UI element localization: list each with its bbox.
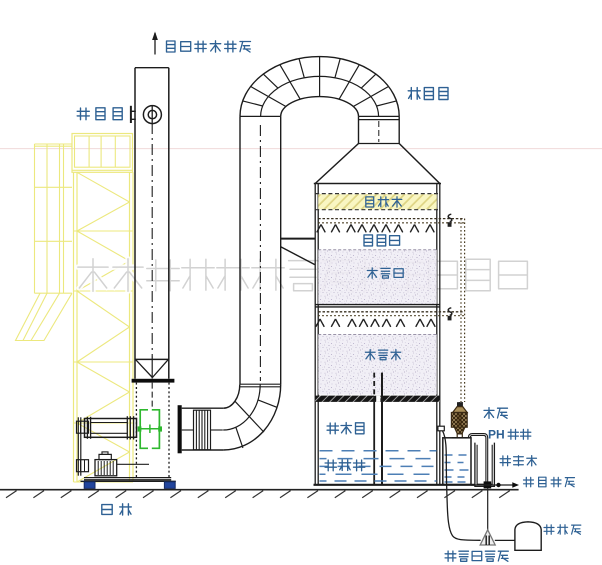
svg-text:PH: PH — [488, 428, 505, 442]
